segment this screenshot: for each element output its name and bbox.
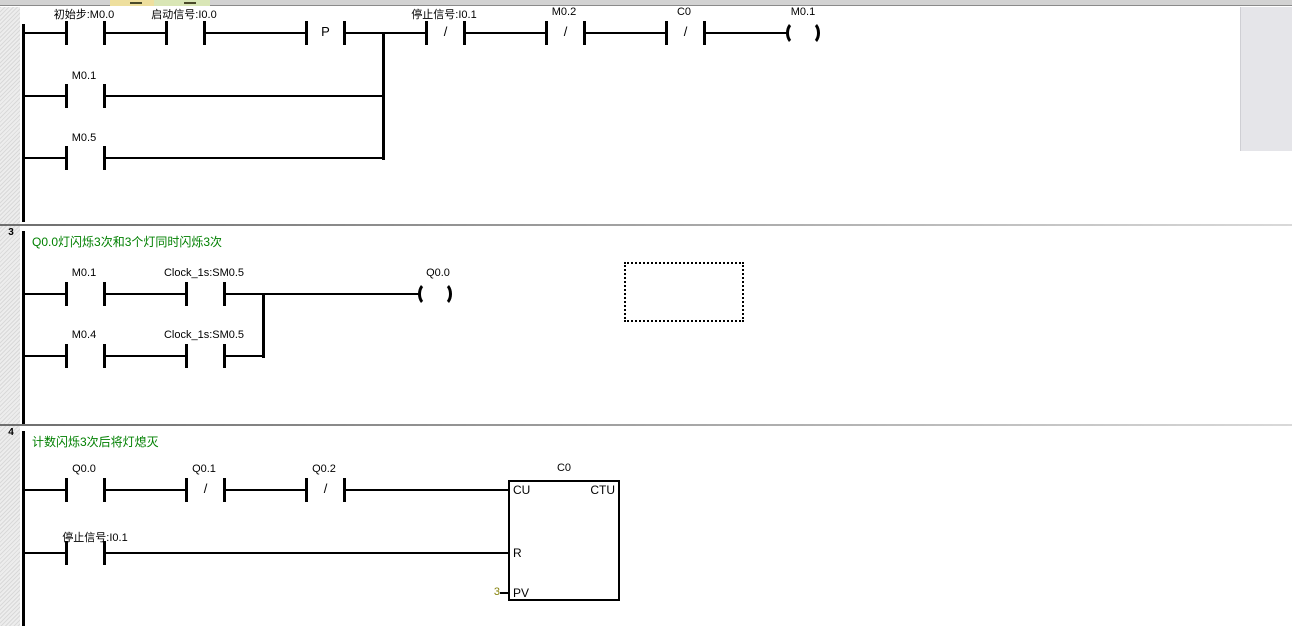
operand-label: Q0.0 [338, 267, 538, 279]
nc-slash: / [665, 24, 706, 39]
wire [106, 293, 185, 295]
operand-label: Clock_1s:SM0.5 [104, 267, 304, 279]
selection-box[interactable] [624, 262, 744, 322]
wire [206, 32, 305, 34]
contact-m0-4[interactable] [65, 344, 106, 368]
wire [25, 355, 65, 357]
branch-wire [262, 293, 265, 358]
contact-nc-m0-2[interactable]: / [545, 21, 586, 45]
edge-p-symbol: P [305, 24, 346, 39]
wire [106, 355, 185, 357]
operand-label: Clock_1s:SM0.5 [104, 329, 304, 341]
network-number: 4 [4, 427, 18, 438]
contact-nc-i0-1[interactable]: / [425, 21, 466, 45]
operand-label: M0.1 [703, 6, 903, 18]
network-comment[interactable]: 计数闪烁3次后将灯熄灭 [32, 433, 159, 450]
network-separator [0, 424, 1292, 426]
contact-m0-0[interactable] [65, 21, 106, 45]
network-separator [0, 224, 1292, 226]
pv-value[interactable]: 3 [480, 586, 500, 598]
contact-nc-q0-1[interactable]: / [185, 478, 226, 502]
nc-slash: / [545, 24, 586, 39]
coil-q0-0[interactable] [418, 282, 452, 306]
wire [226, 293, 421, 295]
contact-branch-m0-5[interactable] [65, 146, 106, 170]
pin-r-label: R [513, 546, 522, 560]
wire [226, 355, 265, 357]
wire [106, 32, 165, 34]
contact-nc-c0[interactable]: / [665, 21, 706, 45]
pin-cu-label: CU [513, 483, 530, 497]
operand-label: 启动信号:I0.0 [84, 6, 284, 22]
nc-slash: / [425, 24, 466, 39]
wire [586, 32, 665, 34]
wire [25, 157, 65, 159]
network-comment[interactable]: Q0.0灯闪烁3次和3个灯同时闪烁3次 [32, 233, 222, 250]
power-rail [22, 24, 25, 222]
wire [25, 32, 65, 34]
wire [226, 489, 305, 491]
nc-slash: / [305, 481, 346, 496]
network-number: 3 [4, 227, 18, 238]
contact-clock-1s[interactable] [185, 282, 226, 306]
contact-nc-q0-2[interactable]: / [305, 478, 346, 502]
wire [25, 293, 65, 295]
nc-slash: / [185, 481, 226, 496]
counter-title: C0 [464, 462, 664, 474]
pin-pv-label: PV [513, 586, 529, 600]
contact-clock-1s[interactable] [185, 344, 226, 368]
operand-label: Q0.2 [224, 463, 424, 475]
wire [106, 157, 383, 159]
operand-label: M0.5 [0, 132, 184, 144]
right-panel-strip [1240, 7, 1292, 151]
contact-branch-m0-1[interactable] [65, 84, 106, 108]
coil-m0-1[interactable] [786, 21, 820, 45]
wire [25, 95, 65, 97]
wire [466, 32, 545, 34]
contact-positive-edge[interactable]: P [305, 21, 346, 45]
toolbar-glyph [184, 2, 196, 4]
wire [346, 32, 425, 34]
operand-label: M0.1 [0, 70, 184, 82]
ctu-counter-box[interactable]: CU CTU R PV [508, 480, 620, 601]
wire [106, 489, 185, 491]
wire [25, 552, 65, 554]
contact-i0-0[interactable] [165, 21, 206, 45]
wire [346, 489, 508, 491]
contact-i0-1[interactable] [65, 541, 106, 565]
power-rail [22, 231, 25, 424]
wire [25, 489, 65, 491]
contact-q0-0[interactable] [65, 478, 106, 502]
wire [706, 32, 789, 34]
ladder-editor-canvas: 初始步:M0.0 启动信号:I0.0 停止信号:I0.1 M0.2 C0 M0.… [0, 0, 1292, 626]
contact-m0-1[interactable] [65, 282, 106, 306]
toolbar-glyph [130, 2, 142, 4]
box-type-label: CTU [590, 483, 615, 497]
wire [500, 592, 508, 594]
wire [106, 552, 508, 554]
wire [106, 95, 383, 97]
